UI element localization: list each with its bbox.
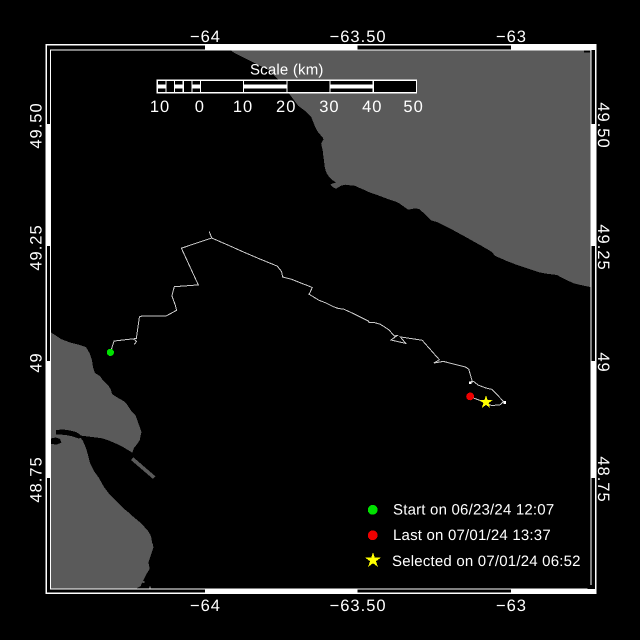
svg-text:−64: −64 [190, 28, 221, 46]
svg-text:10: 10 [150, 98, 170, 116]
svg-text:−64: −64 [190, 597, 221, 615]
svg-text:Last on 07/01/24 13:37: Last on 07/01/24 13:37 [393, 527, 551, 544]
svg-text:49.50: 49.50 [27, 102, 45, 148]
svg-text:48.75: 48.75 [594, 456, 612, 502]
svg-text:−63.50: −63.50 [330, 28, 387, 46]
svg-text:49: 49 [27, 352, 45, 372]
svg-text:49.25: 49.25 [594, 224, 612, 270]
svg-text:−63: −63 [496, 28, 527, 46]
svg-text:Selected on 07/01/24 06:52: Selected on 07/01/24 06:52 [392, 553, 581, 570]
svg-text:49.25: 49.25 [27, 224, 45, 270]
svg-text:30: 30 [319, 98, 339, 116]
svg-text:Start on 06/23/24 12:07: Start on 06/23/24 12:07 [393, 502, 554, 519]
svg-text:49: 49 [594, 352, 612, 372]
svg-text:49.50: 49.50 [594, 102, 612, 148]
svg-text:−63: −63 [496, 597, 527, 615]
svg-text:50: 50 [403, 98, 423, 116]
svg-text:Scale (km): Scale (km) [250, 61, 324, 78]
svg-text:−63.50: −63.50 [330, 597, 387, 615]
svg-text:0: 0 [195, 98, 205, 116]
svg-text:48.75: 48.75 [27, 456, 45, 502]
svg-text:10: 10 [233, 98, 253, 116]
svg-text:20: 20 [276, 98, 296, 116]
svg-text:40: 40 [362, 98, 382, 116]
